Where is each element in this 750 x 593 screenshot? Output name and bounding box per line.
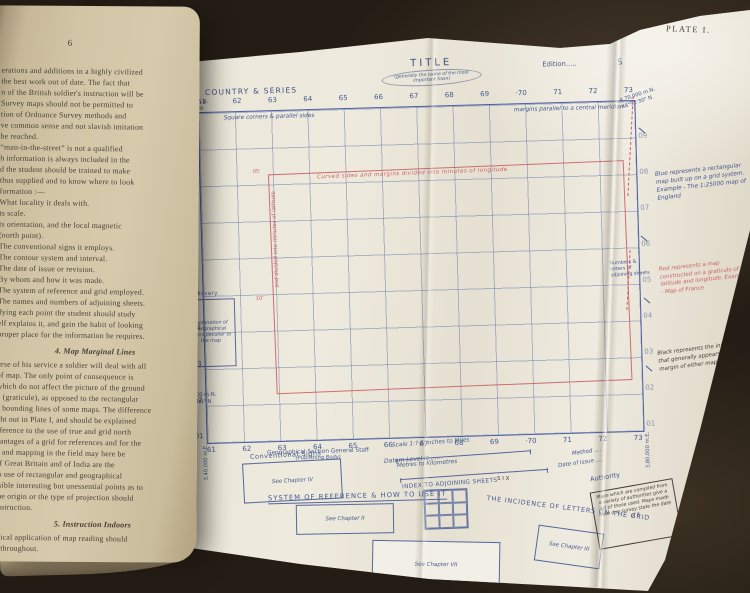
grid-number: 71 — [563, 436, 572, 444]
book-paragraph-b: urse of his service a soldier will deal … — [0, 358, 193, 515]
authority-title: Authority — [590, 471, 621, 484]
red-graticule-map-border: Curved sides and margins divided into mi… — [268, 160, 633, 394]
center-chapter-box: See Chapter VII — [372, 540, 501, 590]
six-note: S I X — [497, 476, 509, 482]
book-text-line: proper place for the information he requ… — [0, 328, 194, 342]
grid-number: 65 — [339, 94, 348, 102]
sheet-cell — [439, 502, 453, 515]
book-text-line: instruction. — [0, 501, 191, 515]
sheet-cell — [453, 502, 467, 515]
grid-number: ·70 — [525, 437, 536, 445]
section-heading-4: 4. Map Marginal Lines — [0, 344, 193, 358]
grid-number: 73 — [634, 434, 643, 442]
grid-number: 72 — [598, 435, 607, 443]
grid-number: 07 — [640, 204, 649, 212]
sheet-cell — [439, 515, 453, 528]
red-minute-tick-top: 05' — [253, 169, 261, 175]
grid-number: 68 — [445, 91, 454, 99]
map-title: TITLE — [376, 56, 486, 70]
sheet-label: S — [617, 57, 622, 66]
grid-number: 66 — [374, 93, 383, 101]
easting-coord-bottom-right: 3,80,000 m.E. — [645, 432, 653, 469]
grid-number: 02 — [645, 384, 654, 392]
red-left-note: and divided into minutes of latitude — [271, 191, 281, 288]
map-title-note: (generally the name of the most importan… — [381, 67, 482, 90]
page-number: 6 — [68, 38, 73, 48]
book-text-column: erations and additions in a highly civil… — [0, 65, 198, 564]
key-red-text: Red represents a map constructed on a gr… — [659, 257, 750, 296]
incidence-box: See Chapter III — [534, 525, 604, 570]
sheet-cell — [453, 515, 467, 528]
grid-number: 68 — [454, 439, 463, 447]
grid-number: 61 — [207, 446, 216, 454]
grid-number: 62 — [232, 97, 241, 105]
grid-number: 63 — [268, 96, 277, 104]
section-heading-5: 5. Instruction Indoors — [0, 517, 191, 531]
grid-number: 69 — [480, 90, 489, 98]
key-black-text: Black represents the information that ge… — [657, 338, 750, 373]
grid-number: 09 — [638, 132, 647, 140]
grid-number: 72 — [588, 87, 597, 95]
sheet-cell — [452, 489, 466, 502]
grid-number: 69 — [490, 438, 499, 446]
red-minute-tick-left: 10' — [256, 296, 264, 302]
map-title-block: TITLE (generally the name of the most im… — [376, 56, 487, 87]
book-left-page: 6 erations and additions in a highly civ… — [0, 5, 200, 562]
grid-number: 03 — [644, 348, 653, 356]
grid-number: 04 — [643, 312, 652, 320]
photo-of-open-book: PLATE I. COUNTRY & SERIES TITLE (general… — [0, 0, 750, 593]
book-paragraph-a: erations and additions in a highly civil… — [0, 65, 198, 343]
book-text-line: d throughout. — [0, 542, 190, 556]
key-blue-text: Blue represents a rectangular map built … — [655, 161, 750, 202]
plate-label: PLATE I. — [666, 23, 711, 35]
grid-number: 06 — [641, 240, 650, 248]
grid-number: 67 — [409, 92, 418, 100]
grid-number: 64 — [303, 95, 312, 103]
grid-number: 71 — [553, 88, 562, 96]
sheet-cell — [425, 503, 439, 516]
edition-label: Edition..... — [542, 60, 577, 69]
grid-number: 01 — [646, 420, 655, 428]
grid-number: 67 — [419, 440, 428, 448]
grid-number: 73 — [624, 86, 633, 94]
grid-number: 08 — [639, 168, 648, 176]
map-diagram: COUNTRY & SERIES TITLE (generally the na… — [181, 74, 661, 467]
book-paragraph-c: ctical application of map reading should… — [0, 531, 190, 556]
grid-number: ·70 — [516, 89, 527, 97]
system-reference-box: See Chapter II — [296, 503, 395, 535]
date-of-issue-label: Date of issue .... — [558, 457, 603, 469]
grid-number: 05 — [642, 276, 651, 284]
sheet-cell — [425, 516, 439, 529]
